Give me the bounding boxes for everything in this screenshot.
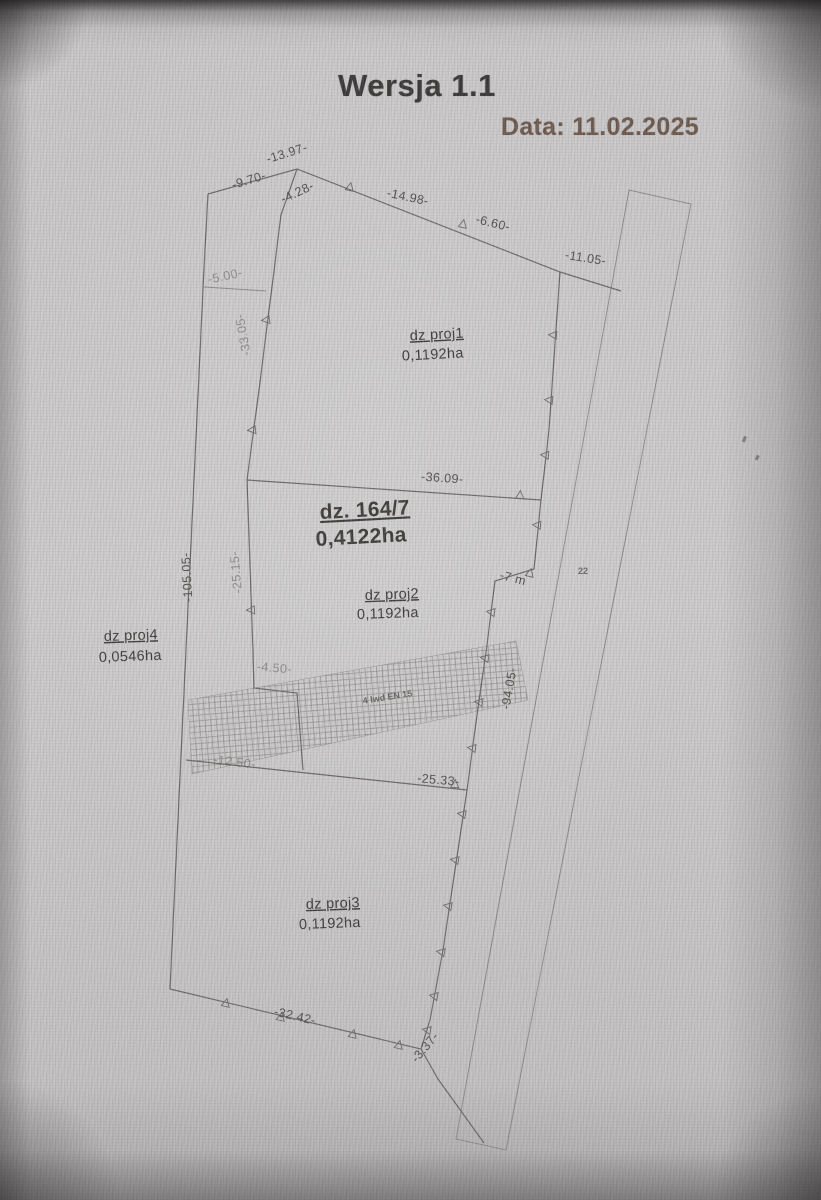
parcel-proj4-area: 0,0546ha [99, 648, 163, 666]
screen-photo: Wersja 1.1 Data: 11.02.2025 [0, 0, 821, 1200]
parcel-proj1-area: 0,1192ha [402, 345, 465, 364]
dim-9-70: -9.70- [230, 168, 268, 192]
dim-105-05: -105.05- [179, 552, 196, 602]
dim-33-05: -33.05- [232, 313, 253, 357]
dim-32-42: -32.42- [273, 1005, 317, 1028]
photo-artifacts [742, 436, 760, 461]
dim-6-60: -6.60- [474, 212, 511, 234]
dim-25-15: -25.15- [227, 551, 245, 594]
parcel-164-7-area: 0,4122ha [315, 523, 407, 551]
dim-5-00: -5.00- [207, 266, 244, 287]
parcel-proj2-area: 0,1192ha [357, 605, 420, 623]
parcel-proj3-area: 0,1192ha [299, 915, 362, 933]
parcel-proj1-name: dz proj1 [409, 326, 464, 345]
dim-25-33: -25.33- [417, 771, 460, 789]
parcel-proj4-name: dz proj4 [104, 627, 159, 645]
dim-7m: -7 m [498, 568, 527, 588]
parcel-164-7-name: dz. 164/7 [319, 496, 410, 524]
dim-11-05: -11.05- [564, 248, 607, 268]
dim-13-97: -13.97- [265, 140, 310, 166]
parcel-proj2-name: dz proj2 [365, 586, 420, 604]
note-small-right: 22 [578, 566, 588, 576]
parcel-labels: dz proj1 0,1192ha dz. 164/7 0,4122ha dz … [99, 326, 465, 933]
survey-plan: -13.97- -9.70- -4.28- -14.98- -6.60- -11… [0, 0, 821, 1200]
dim-14-98: -14.98- [386, 186, 430, 209]
utility-corridor-hatch [188, 641, 528, 774]
dim-36-09: -36.09- [421, 470, 464, 487]
parcel-proj3-name: dz proj3 [306, 895, 361, 913]
dim-4-50: -4.50- [256, 660, 292, 677]
dim-4-28: -4.28- [278, 179, 316, 207]
